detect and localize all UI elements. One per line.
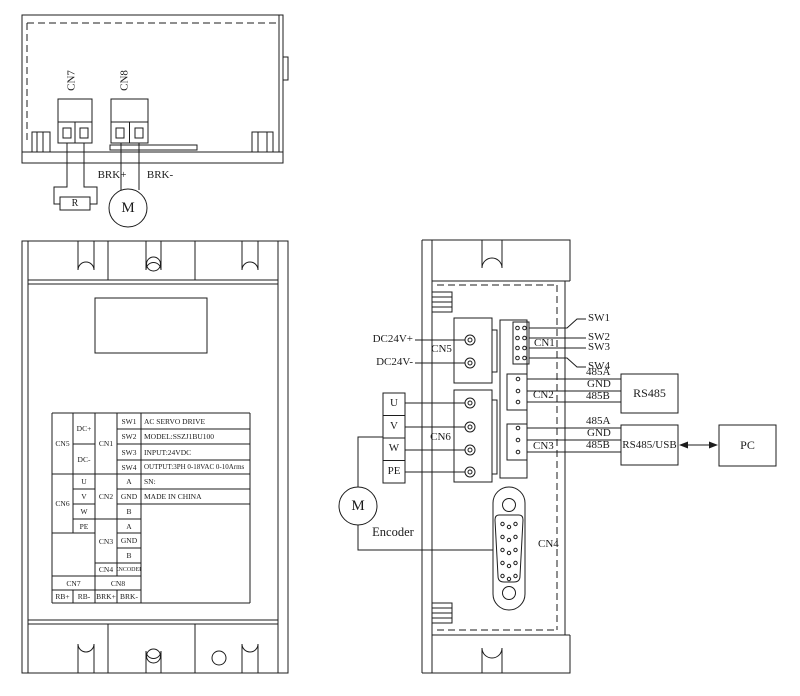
np-cn2-gnd: GND [117,489,141,504]
cn6-connector-side [454,390,497,482]
motor-label-top: M [109,199,147,217]
np-cn2-b: B [117,504,141,519]
servo-drive-wiring-diagram: CN7 CN8 BRK+ BRK- R M CN5 DC+ DC- CN1 SW… [0,0,800,696]
top-view-right-foot [252,132,273,152]
rs485-label: RS485 [621,374,678,413]
np-cn3: CN3 [95,519,117,563]
pc-label: PC [719,425,776,466]
cn6-label-side: CN6 [429,432,452,444]
brk-plus-label: BRK+ [95,170,129,182]
np-info-input: INPUT:24VDC [141,444,253,460]
cn2-485b-label: 485B [586,391,610,403]
np-sw4: SW4 [117,460,141,474]
cn2-gnd-label: GND [587,379,611,391]
v-terminal-label: V [383,421,405,433]
cn3-gnd-label: GND [587,428,611,440]
mount-slot [78,644,94,673]
dsub-screw-hole [503,499,516,512]
sw3-label: SW3 [588,342,610,354]
motor-label-side: M [339,497,377,515]
np-sw2: SW2 [117,429,141,444]
np-cn7: CN7 [52,576,95,590]
np-info-model: MODEL:SSZJ1BU100 [141,429,253,444]
np-cn2-a: A [117,474,141,489]
np-cn4-encoder: ENCODER [117,563,141,576]
np-brk-plus: BRK+ [95,590,117,603]
cn5-connector-side [454,318,497,383]
motor-power-wire [358,437,383,487]
pe-terminal-label: PE [383,466,405,478]
dsub-screw-hole [503,587,516,600]
dc24v-plus-label: DC24V+ [359,334,413,346]
cn1-label-side: CN1 [534,338,555,350]
np-v: V [73,489,95,504]
np-dc-plus: DC+ [73,413,95,444]
u-terminal-label: U [383,398,405,410]
np-pe: PE [73,519,95,533]
top-view-outline [22,15,288,163]
cn2-label-side: CN2 [533,390,554,402]
top-view-right-bump [283,57,288,80]
cn8-label-top: CN8 [120,61,133,101]
cn7-connector-top [58,99,92,143]
side-view-wires [358,319,621,550]
top-view-left-foot [32,132,50,152]
dsub-pins [501,522,517,580]
arrow-left-head [679,442,688,449]
mount-slot [242,644,258,673]
np-info-origin: MADE IN CHINA [141,489,253,504]
cn4-dsub-connector [493,487,525,610]
np-cn2: CN2 [95,474,117,519]
np-cn4: CN4 [95,563,117,576]
np-rb-plus: RB+ [52,590,73,603]
np-sw3: SW3 [117,444,141,460]
np-rb-minus: RB- [73,590,95,603]
w-terminal-label: W [383,443,405,455]
np-u: U [73,474,95,489]
cn3-485a-label: 485A [586,416,610,428]
cn2-485a-label: 485A [586,367,610,379]
np-info-sn: SN: [141,474,253,489]
cn7-label-top: CN7 [67,61,80,101]
np-cn5: CN5 [52,413,73,474]
arrow-right-head [709,442,718,449]
cn8-connector-top [111,99,148,143]
np-cn1: CN1 [95,413,117,474]
cn3-485b-label: 485B [586,440,610,452]
mount-slot [242,241,258,270]
sw1-label: SW1 [588,313,610,325]
brk-minus-label: BRK- [143,170,177,182]
np-sw1: SW1 [117,413,141,429]
np-w: W [73,504,95,519]
np-info-output: OUTPUT:3PH 0-18VAC 0-10Arms [141,460,253,474]
rs485-usb-label: RS485/USB [621,425,678,465]
np-cn3-b: B [117,548,141,563]
mount-hole [212,651,226,665]
mount-slot [78,241,94,270]
display-window [95,298,207,353]
np-info-title: AC SERVO DRIVE [141,413,253,429]
np-cn3-a: A [117,519,141,533]
side-view-outline [422,240,570,673]
din-clip-bottom [432,603,452,623]
encoder-label: Encoder [365,526,421,539]
mount-notch [482,240,502,268]
mount-notch [482,648,502,673]
cn5-label-side: CN5 [430,344,453,356]
np-cn8: CN8 [95,576,141,590]
mount-slot [146,651,161,673]
np-cn6: CN6 [52,474,73,533]
cn3-connector-side [507,424,527,460]
din-clip-top [432,292,452,312]
cn2-connector-side [507,374,527,410]
dc24v-minus-label: DC24V- [359,357,413,369]
cn4-label-side: CN4 [538,539,559,551]
np-dc-minus: DC- [73,444,95,474]
top-view-base-bar [110,145,197,150]
resistor-label: R [60,197,90,210]
np-cn3-gnd: GND [117,533,141,548]
cn3-label-side: CN3 [533,441,554,453]
np-brk-minus: BRK- [117,590,141,603]
mount-slot [146,241,161,270]
